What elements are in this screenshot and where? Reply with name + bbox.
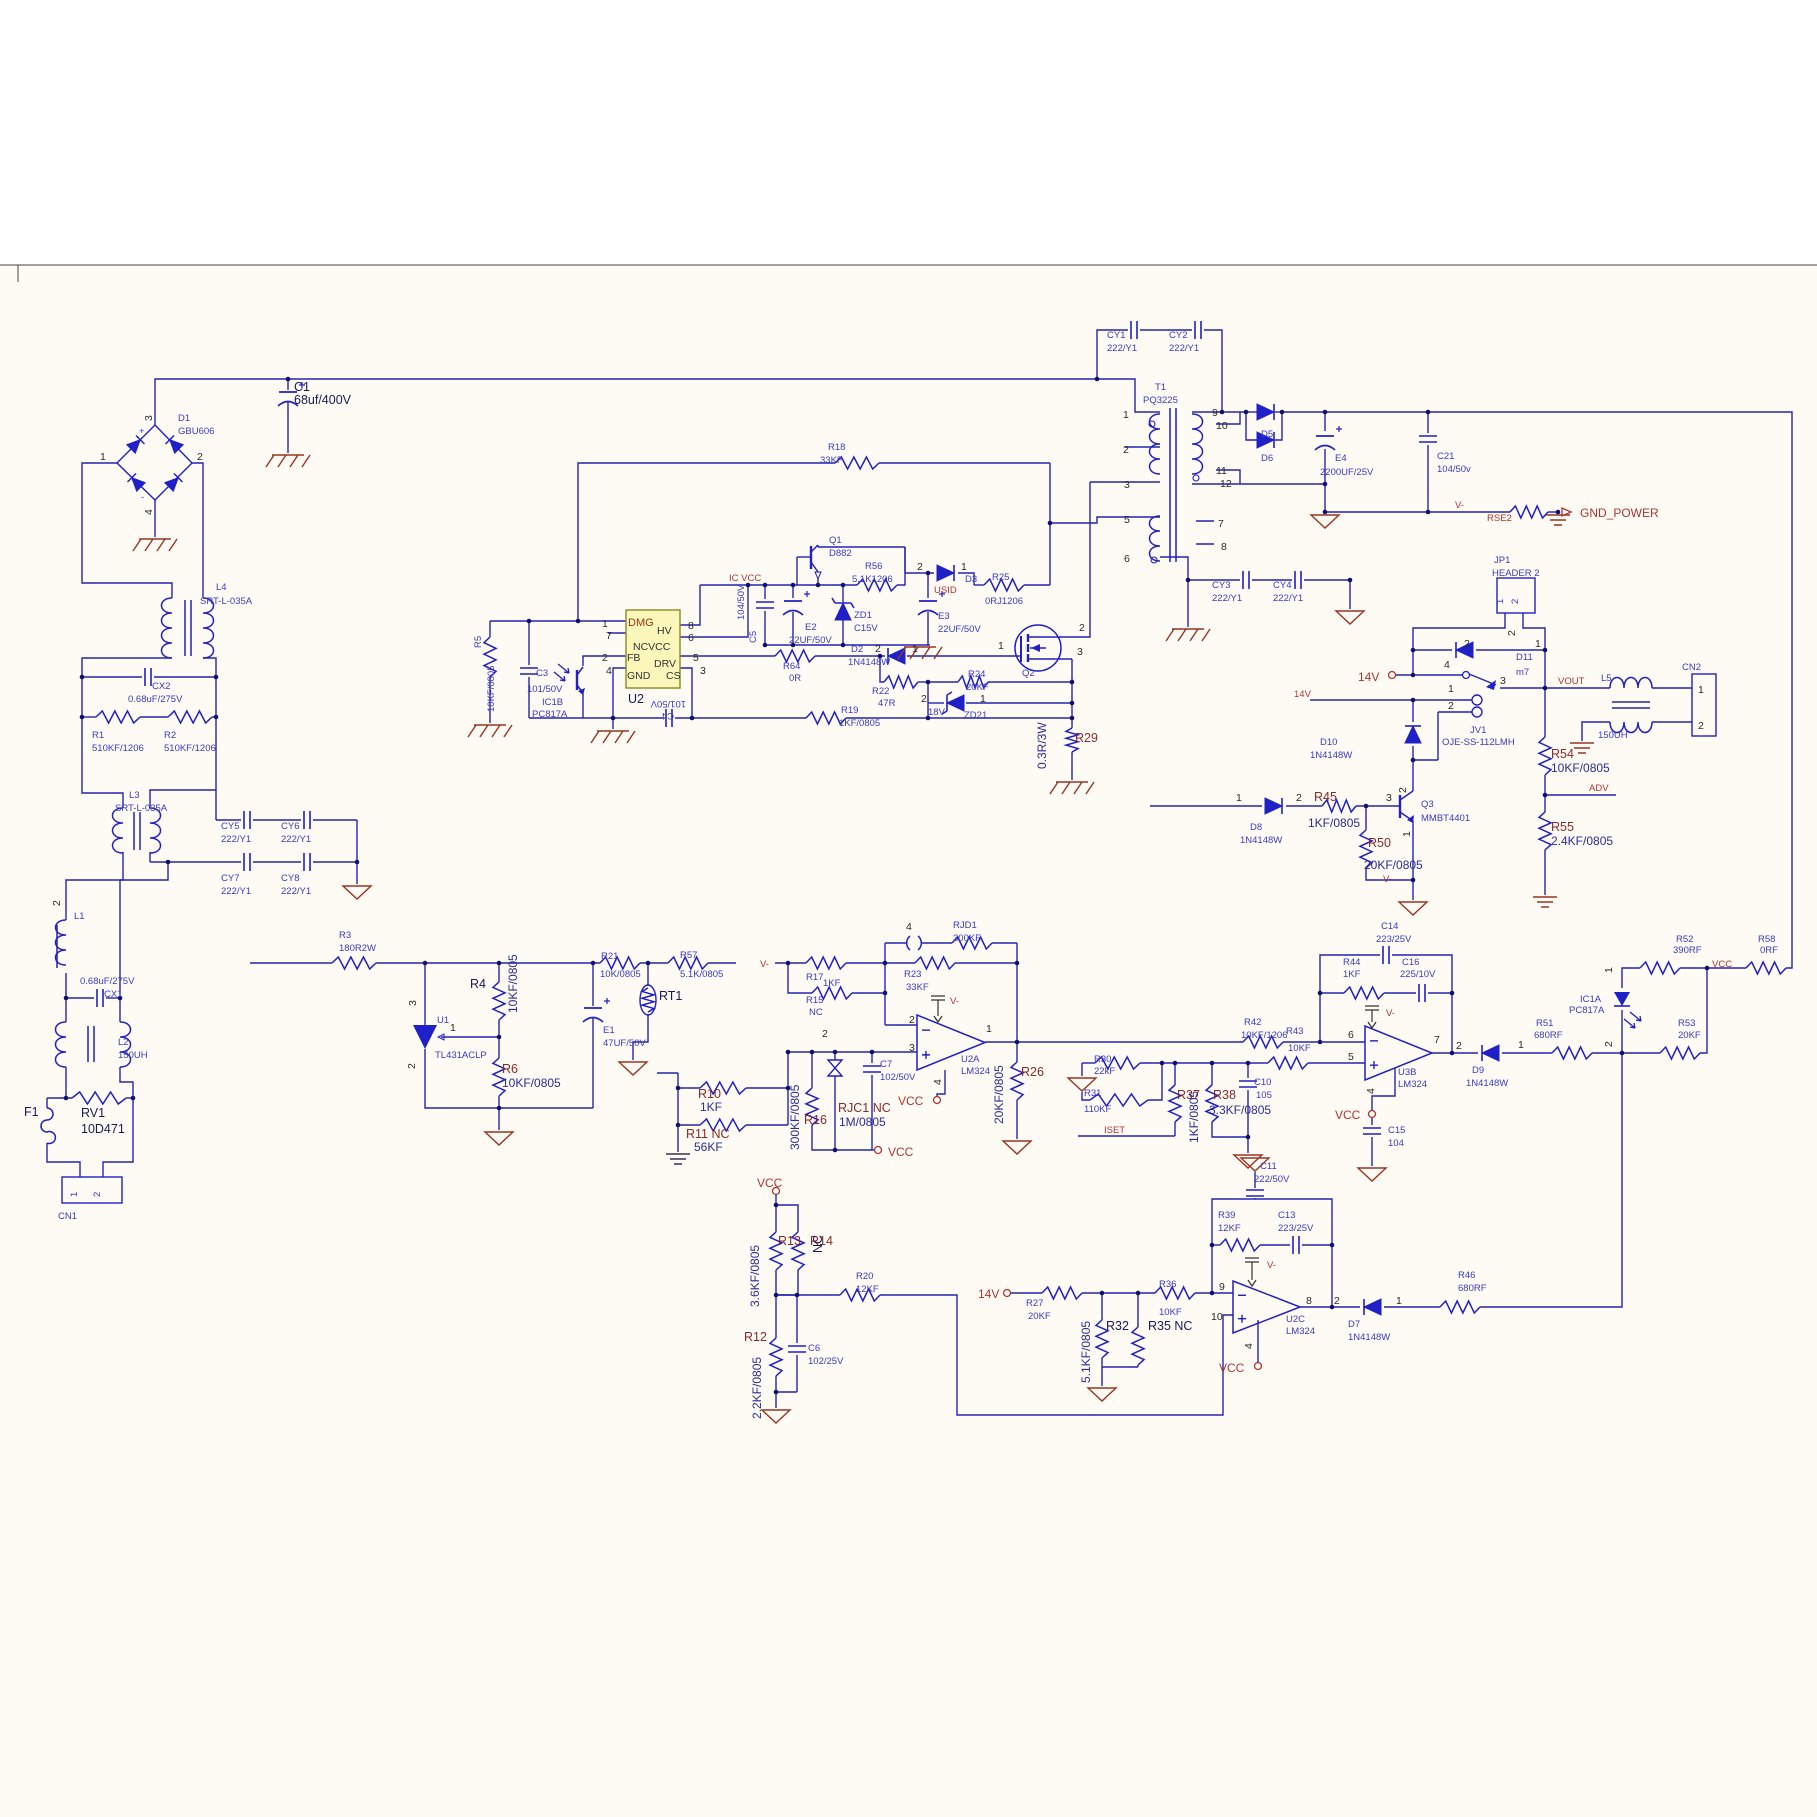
junction-dot — [1100, 1291, 1105, 1296]
label-e1: E1 — [603, 1025, 615, 1036]
junction-dot — [1543, 793, 1548, 798]
junction-dot — [1160, 1061, 1165, 1066]
label-r20: R20 — [856, 1271, 873, 1282]
label-r17: R17 — [806, 972, 823, 983]
junction-dot — [646, 961, 651, 966]
label-10kf: 10KF — [1288, 1043, 1311, 1054]
label-0rj1206: 0RJ1206 — [985, 596, 1023, 607]
label-c13: C13 — [1278, 1210, 1295, 1221]
label-r22: R22 — [872, 686, 889, 697]
label-18v: 18V — [928, 707, 946, 718]
label-r1: R1 — [92, 730, 104, 741]
label-12: 12 — [1220, 478, 1232, 490]
label-10kf-0805: 10KF/0805 — [1551, 761, 1610, 775]
label-4: 4 — [906, 921, 912, 933]
label-r23: R23 — [904, 969, 921, 980]
label-14v: 14V — [1358, 670, 1379, 684]
label-102-25v: 102/25V — [808, 1356, 844, 1367]
label-c16: C16 — [1402, 957, 1419, 968]
label-1: 1 — [1518, 1039, 1524, 1051]
label-u2a: U2A — [961, 1054, 980, 1065]
label-1: 1 — [961, 561, 967, 573]
label-1: 1 — [1448, 683, 1454, 695]
junction-dot — [527, 619, 532, 624]
label-5-1k-0805: 5.1K/0805 — [680, 969, 723, 980]
label-c6: C6 — [808, 1343, 820, 1354]
label-q2: Q2 — [1022, 668, 1035, 679]
label-r11-nc: R11 NC — [686, 1127, 730, 1141]
label-gnd: GND — [627, 670, 651, 682]
junction-dot — [1318, 1040, 1323, 1045]
label-6: 6 — [1124, 553, 1130, 565]
junction-dot — [1364, 804, 1369, 809]
label-1: 1 — [100, 451, 106, 463]
label-8: 8 — [688, 620, 694, 632]
junction-dot — [64, 996, 69, 1001]
label-3: 3 — [143, 415, 155, 421]
junction-dot — [80, 675, 85, 680]
junction-dot — [1280, 410, 1285, 415]
label-12kf: 12KF — [856, 1284, 879, 1295]
label-1: 1 — [1698, 684, 1704, 696]
label-e2: E2 — [805, 622, 817, 633]
junction-dot — [497, 1106, 502, 1111]
label-cy3: CY3 — [1212, 580, 1230, 591]
junction-dot — [1411, 758, 1416, 763]
label-20kf-0805: 20KF/0805 — [992, 1065, 1006, 1124]
label-2: 2 — [1296, 792, 1302, 804]
junction-dot — [1411, 878, 1416, 883]
label-drv: DRV — [654, 658, 676, 670]
junction-dot — [763, 583, 768, 588]
label-r5: R5 — [473, 636, 484, 648]
junction-dot — [870, 1050, 875, 1055]
label-10kf-0805: 10KF/0805 — [502, 1076, 561, 1090]
label-2: 2 — [1456, 1040, 1462, 1052]
junction-dot — [1543, 686, 1548, 691]
junction-dot — [1220, 410, 1225, 415]
label-r45: R45 — [1314, 790, 1337, 804]
label-222-y1: 222/Y1 — [281, 886, 311, 897]
label-2-2kf-0805: 2.2KF/0805 — [750, 1357, 764, 1419]
junction-dot — [883, 961, 888, 966]
junction-dot — [1095, 377, 1100, 382]
label-510kf-1206: 510KF/1206 — [92, 743, 144, 754]
label-l2: L2 — [118, 1037, 129, 1048]
label-12kf: 12KF — [1218, 1223, 1241, 1234]
junction-dot — [1426, 510, 1431, 515]
label-r19: R19 — [841, 705, 858, 716]
label-jp1: JP1 — [1494, 555, 1510, 566]
junction-dot — [774, 1390, 779, 1395]
label-r53: R53 — [1678, 1018, 1695, 1029]
label-r36: R36 — [1159, 1279, 1176, 1290]
label-2: 2 — [602, 652, 608, 664]
label-srt-l-035a: SRT-L-035A — [200, 596, 253, 607]
label-10kf-1206: 10KF/1206 — [1241, 1030, 1287, 1041]
junction-dot — [676, 1123, 681, 1128]
label-r64: R64 — [783, 661, 800, 672]
label-1: 1 — [1495, 599, 1506, 604]
label-2: 2 — [1334, 1295, 1340, 1307]
label-1: 1 — [69, 1192, 80, 1197]
label-c4: C4 — [662, 710, 674, 721]
label-r18: R18 — [828, 442, 845, 453]
label-v-: V- — [1383, 874, 1392, 885]
label-r58: R58 — [1758, 934, 1775, 945]
label-cx1: CX1 — [104, 989, 122, 1000]
label-20kf: 20KF — [1678, 1030, 1701, 1041]
label-8: 8 — [1221, 541, 1227, 553]
label-q1: Q1 — [829, 535, 842, 546]
label-6: 6 — [1348, 1029, 1354, 1041]
label-u1: U1 — [437, 1015, 449, 1026]
label-lm324: LM324 — [1286, 1326, 1315, 1337]
junction-dot — [1543, 648, 1548, 653]
label-1kf-0805: 1KF/0805 — [1308, 816, 1360, 830]
label-33kf: 33KF — [820, 455, 843, 466]
label-d6: D6 — [1261, 453, 1273, 464]
label-2: 2 — [909, 1014, 915, 1026]
junction-dot — [774, 1203, 779, 1208]
label-e3: E3 — [938, 611, 950, 622]
label-nc: NC — [809, 1007, 823, 1018]
label-cy2: CY2 — [1169, 330, 1187, 341]
label-oje-ss-112lmh: OJE-SS-112LMH — [1442, 737, 1515, 748]
label-7: 7 — [606, 630, 612, 642]
junction-dot — [286, 377, 291, 382]
label-222-y1: 222/Y1 — [1107, 343, 1137, 354]
label-222-y1: 222/Y1 — [1212, 593, 1242, 604]
label-u2c: U2C — [1286, 1314, 1305, 1325]
label-10: 10 — [1216, 420, 1228, 432]
label-cy7: CY7 — [221, 873, 239, 884]
label-1: 1 — [912, 643, 918, 655]
junction-dot — [1244, 410, 1249, 415]
junction-dot — [883, 991, 888, 996]
junction-dot — [786, 961, 791, 966]
label-1kf-0805: 1KF/0805 — [1187, 1091, 1201, 1143]
label-2-4kf-0805: 2.4KF/0805 — [1551, 834, 1613, 848]
label-1: 1 — [980, 693, 986, 705]
junction-dot — [841, 583, 846, 588]
label-222-y1: 222/Y1 — [221, 886, 251, 897]
label-2: 2 — [1603, 1041, 1615, 1047]
label-jv1: JV1 — [1470, 725, 1486, 736]
label-c3: C3 — [536, 668, 548, 679]
label-d8: D8 — [1250, 822, 1262, 833]
junction-dot — [1246, 1061, 1251, 1066]
label-r2: R2 — [164, 730, 176, 741]
label-2: 2 — [917, 561, 923, 573]
label-1m-0805: 1M/0805 — [839, 1115, 886, 1129]
label-20kf: 20KF — [966, 682, 989, 693]
label-510kf-1206: 510KF/1206 — [164, 743, 216, 754]
label-r54: R54 — [1551, 747, 1574, 761]
label-gnd-power: GND_POWER — [1580, 506, 1659, 520]
junction-dot — [1620, 1051, 1625, 1056]
label-d1: D1 — [178, 413, 190, 424]
junction-dot — [763, 643, 768, 648]
label-222-y1: 222/Y1 — [1273, 593, 1303, 604]
junction-dot — [786, 1050, 791, 1055]
label-nc: NC — [811, 1235, 825, 1253]
label-v-: V- — [950, 996, 959, 1007]
label-d5: D5 — [1261, 429, 1273, 440]
junction-dot — [1450, 991, 1455, 996]
label-ic1a: IC1A — [1580, 994, 1602, 1005]
label-1: 1 — [450, 1022, 456, 1034]
label-20kf-0805: 20KF/0805 — [1364, 858, 1423, 872]
label-47r: 47R — [878, 698, 896, 709]
label-2: 2 — [1448, 700, 1454, 712]
junction-dot — [1556, 510, 1561, 515]
label-c21: C21 — [1437, 451, 1454, 462]
junction-dot — [214, 715, 219, 720]
label-m7: m7 — [1516, 667, 1529, 678]
label-rjd1: RJD1 — [953, 920, 977, 931]
label-cn1: CN1 — [58, 1211, 77, 1222]
label-5-1k1206: 5.1K1206 — [852, 574, 893, 585]
label-3: 3 — [909, 1042, 915, 1054]
label-r43: R43 — [1286, 1026, 1303, 1037]
label-c5: C5 — [748, 631, 759, 643]
label-cs: CS — [666, 670, 681, 682]
junction-dot — [676, 1086, 681, 1091]
junction-dot — [1330, 1243, 1335, 1248]
label-r55: R55 — [1551, 820, 1574, 834]
label-cy8: CY8 — [281, 873, 299, 884]
label-r21: R21 — [601, 951, 618, 962]
label-1: 1 — [1603, 967, 1615, 973]
junction-dot — [774, 1293, 779, 1298]
label-680rf: 680RF — [1458, 1283, 1487, 1294]
junction-dot — [497, 1035, 502, 1040]
label-1n4148w: 1N4148W — [1240, 835, 1282, 846]
label-4: 4 — [1365, 1088, 1377, 1094]
label-d882: D882 — [829, 548, 852, 559]
schematic-canvas: D1GBU6061234+-C168uf/400VL4SRT-L-035ACX2… — [0, 0, 1817, 1817]
label-150uh: 150UH — [1598, 730, 1628, 741]
label-0-68uf-275v: 0.68uF/275V — [80, 976, 135, 987]
label-cy5: CY5 — [221, 821, 239, 832]
label-101-50v: 101/50V — [650, 698, 686, 709]
label-1: 1 — [1236, 792, 1242, 804]
label-u3b: U3B — [1398, 1067, 1416, 1078]
sheet-background — [0, 265, 1817, 1817]
label-r32: R32 — [1106, 1319, 1129, 1333]
junction-dot — [1070, 701, 1075, 706]
label-hv: HV — [657, 625, 672, 637]
label-pq3225: PQ3225 — [1143, 395, 1178, 406]
label-222-y1: 222/Y1 — [1169, 343, 1199, 354]
label-zd21: ZD21 — [964, 710, 987, 721]
label-104-50v: 104/50V — [736, 584, 747, 620]
label-r44: R44 — [1343, 957, 1360, 968]
label-pc817a: PC817A — [1569, 1005, 1605, 1016]
label-222-y1: 222/Y1 — [221, 834, 251, 845]
label-1: 1 — [1401, 831, 1413, 837]
label-1kf-0805: 1KF/0805 — [839, 718, 880, 729]
junction-dot — [833, 1050, 838, 1055]
junction-dot — [1323, 510, 1328, 515]
label-c1: C1 — [294, 380, 310, 394]
junction-dot — [1015, 1040, 1020, 1045]
label-102-50v: 102/50V — [880, 1072, 916, 1083]
junction-dot — [1246, 1135, 1251, 1140]
label-r6: R6 — [502, 1062, 518, 1076]
junction-dot — [611, 716, 616, 721]
label-14v: 14V — [1294, 689, 1312, 700]
junction-dot — [1323, 410, 1328, 415]
label-180r2w: 180R2W — [339, 943, 376, 954]
label-2: 2 — [1698, 720, 1704, 732]
label-3-3kf-0805: 3.3KF/0805 — [1209, 1103, 1271, 1117]
label-2: 2 — [921, 693, 927, 705]
label-3: 3 — [1124, 479, 1130, 491]
junction-dot — [816, 583, 821, 588]
label-r12: R12 — [744, 1330, 767, 1344]
junction-dot — [1210, 1291, 1215, 1296]
label-r35-nc: R35 NC — [1148, 1319, 1192, 1333]
label-vcc: VCC — [888, 1145, 914, 1159]
junction-dot — [80, 715, 85, 720]
label-cx2: CX2 — [152, 681, 170, 692]
label-l5: L5 — [1601, 673, 1612, 684]
label-1n4148w: 1N4148W — [1348, 1332, 1390, 1343]
label-3: 3 — [1386, 792, 1392, 804]
junction-dot — [423, 961, 428, 966]
label-4: 4 — [143, 509, 155, 515]
junction-dot — [1426, 410, 1431, 415]
label-mmbt4401: MMBT4401 — [1421, 813, 1470, 824]
label-2: 2 — [406, 1063, 418, 1069]
label-300kf-0805: 300KF/0805 — [788, 1084, 802, 1150]
label-e4: E4 — [1335, 453, 1347, 464]
label-cy1: CY1 — [1107, 330, 1125, 341]
junction-dot — [166, 860, 171, 865]
label-104: 104 — [1388, 1138, 1404, 1149]
label-1kf: 1KF — [700, 1100, 722, 1114]
label-7: 7 — [1218, 518, 1224, 530]
label-d7: D7 — [1348, 1319, 1360, 1330]
label-r52: R52 — [1676, 934, 1693, 945]
label-33kf: 33KF — [906, 982, 929, 993]
label-pc817a: PC817A — [532, 709, 568, 720]
label-1: 1 — [998, 640, 1004, 652]
label-10: 10 — [1211, 1311, 1223, 1323]
label-22uf-50v: 22UF/50V — [938, 624, 981, 635]
label-r51: R51 — [1536, 1018, 1553, 1029]
junction-dot — [926, 571, 931, 576]
label-2: 2 — [1506, 630, 1518, 636]
label-r29: R29 — [1075, 731, 1098, 745]
label-5-1kf-0805: 5.1KF/0805 — [1079, 1321, 1093, 1383]
junction-dot — [131, 1096, 136, 1101]
label-vcc: VCC — [1712, 959, 1732, 970]
label-vcc: VCC — [757, 1176, 783, 1190]
label-3: 3 — [407, 1000, 419, 1006]
label-zd1: ZD1 — [854, 610, 872, 621]
label-0rf: 0RF — [1760, 945, 1778, 956]
label-v-: V- — [1455, 500, 1464, 511]
label--: - — [141, 492, 144, 503]
label-1n4148w: 1N4148W — [848, 657, 890, 668]
label-l3: L3 — [129, 790, 140, 801]
label-rjc1-nc: RJC1 NC — [838, 1101, 891, 1115]
label-4: 4 — [1444, 659, 1450, 671]
label-223-25v: 223/25V — [1278, 1223, 1314, 1234]
junction-dot — [1070, 716, 1075, 721]
label-c15: C15 — [1388, 1125, 1405, 1136]
label-vcc: VCC — [1219, 1361, 1245, 1375]
label-vcc: VCC — [1335, 1108, 1361, 1122]
label-14v: 14V — [978, 1287, 999, 1301]
label-222-y1: 222/Y1 — [281, 834, 311, 845]
label-10kf-0805: 10KF/0805 — [486, 666, 497, 712]
label-v-: V- — [1386, 1008, 1395, 1019]
label-56kf: 56KF — [694, 1140, 723, 1154]
label-1: 1 — [1123, 409, 1129, 421]
label-r25: R25 — [992, 572, 1009, 583]
junction-dot — [1411, 648, 1416, 653]
junction-dot — [1705, 966, 1710, 971]
junction-dot — [64, 1096, 69, 1101]
label-1kf: 1KF — [1343, 969, 1361, 980]
label-dmg: DMG — [628, 617, 654, 629]
label-225-10v: 225/10V — [1400, 969, 1436, 980]
label-r26: R26 — [1021, 1065, 1044, 1079]
label-r56: R56 — [865, 561, 882, 572]
junction-dot — [1048, 521, 1053, 526]
label-5: 5 — [1348, 1051, 1354, 1063]
label-q3: Q3 — [1421, 799, 1434, 810]
label-ic1b: IC1B — [542, 697, 563, 708]
junction-dot — [214, 675, 219, 680]
label-2: 2 — [822, 1028, 828, 1040]
label-11: 11 — [1216, 465, 1227, 477]
label-r50: R50 — [1368, 836, 1391, 850]
label-r24: R24 — [968, 669, 985, 680]
junction-dot — [841, 643, 846, 648]
label-0-3r-3w: 0.3R/3W — [1035, 722, 1049, 769]
label-cn2: CN2 — [1682, 662, 1701, 673]
junction-dot — [1411, 673, 1416, 678]
label-10kf-0805: 10KF/0805 — [506, 954, 520, 1013]
label-c10: C10 — [1254, 1077, 1271, 1088]
label-l4: L4 — [216, 582, 227, 593]
label-1: 1 — [1396, 1295, 1402, 1307]
label-9: 9 — [1212, 407, 1218, 419]
junction-dot — [576, 619, 581, 624]
label-300kf: 300KF — [953, 933, 981, 944]
label-usid: USID — [934, 585, 957, 596]
label-2: 2 — [1510, 599, 1521, 604]
label-1n4148w: 1N4148W — [1310, 750, 1352, 761]
junction-dot — [1015, 961, 1020, 966]
label-rt1: RT1 — [659, 989, 682, 1003]
label-r13: R13 — [778, 1234, 801, 1248]
label-2: 2 — [1079, 622, 1085, 634]
label-4: 4 — [1243, 1343, 1255, 1349]
junction-dot — [810, 1050, 815, 1055]
label-5: 5 — [1124, 514, 1130, 526]
label-3: 3 — [700, 665, 706, 677]
label-2: 2 — [1123, 444, 1129, 456]
junction-dot — [791, 583, 796, 588]
label-rse2: RSE2 — [1487, 513, 1512, 524]
label-c11: C11 — [1260, 1161, 1277, 1172]
